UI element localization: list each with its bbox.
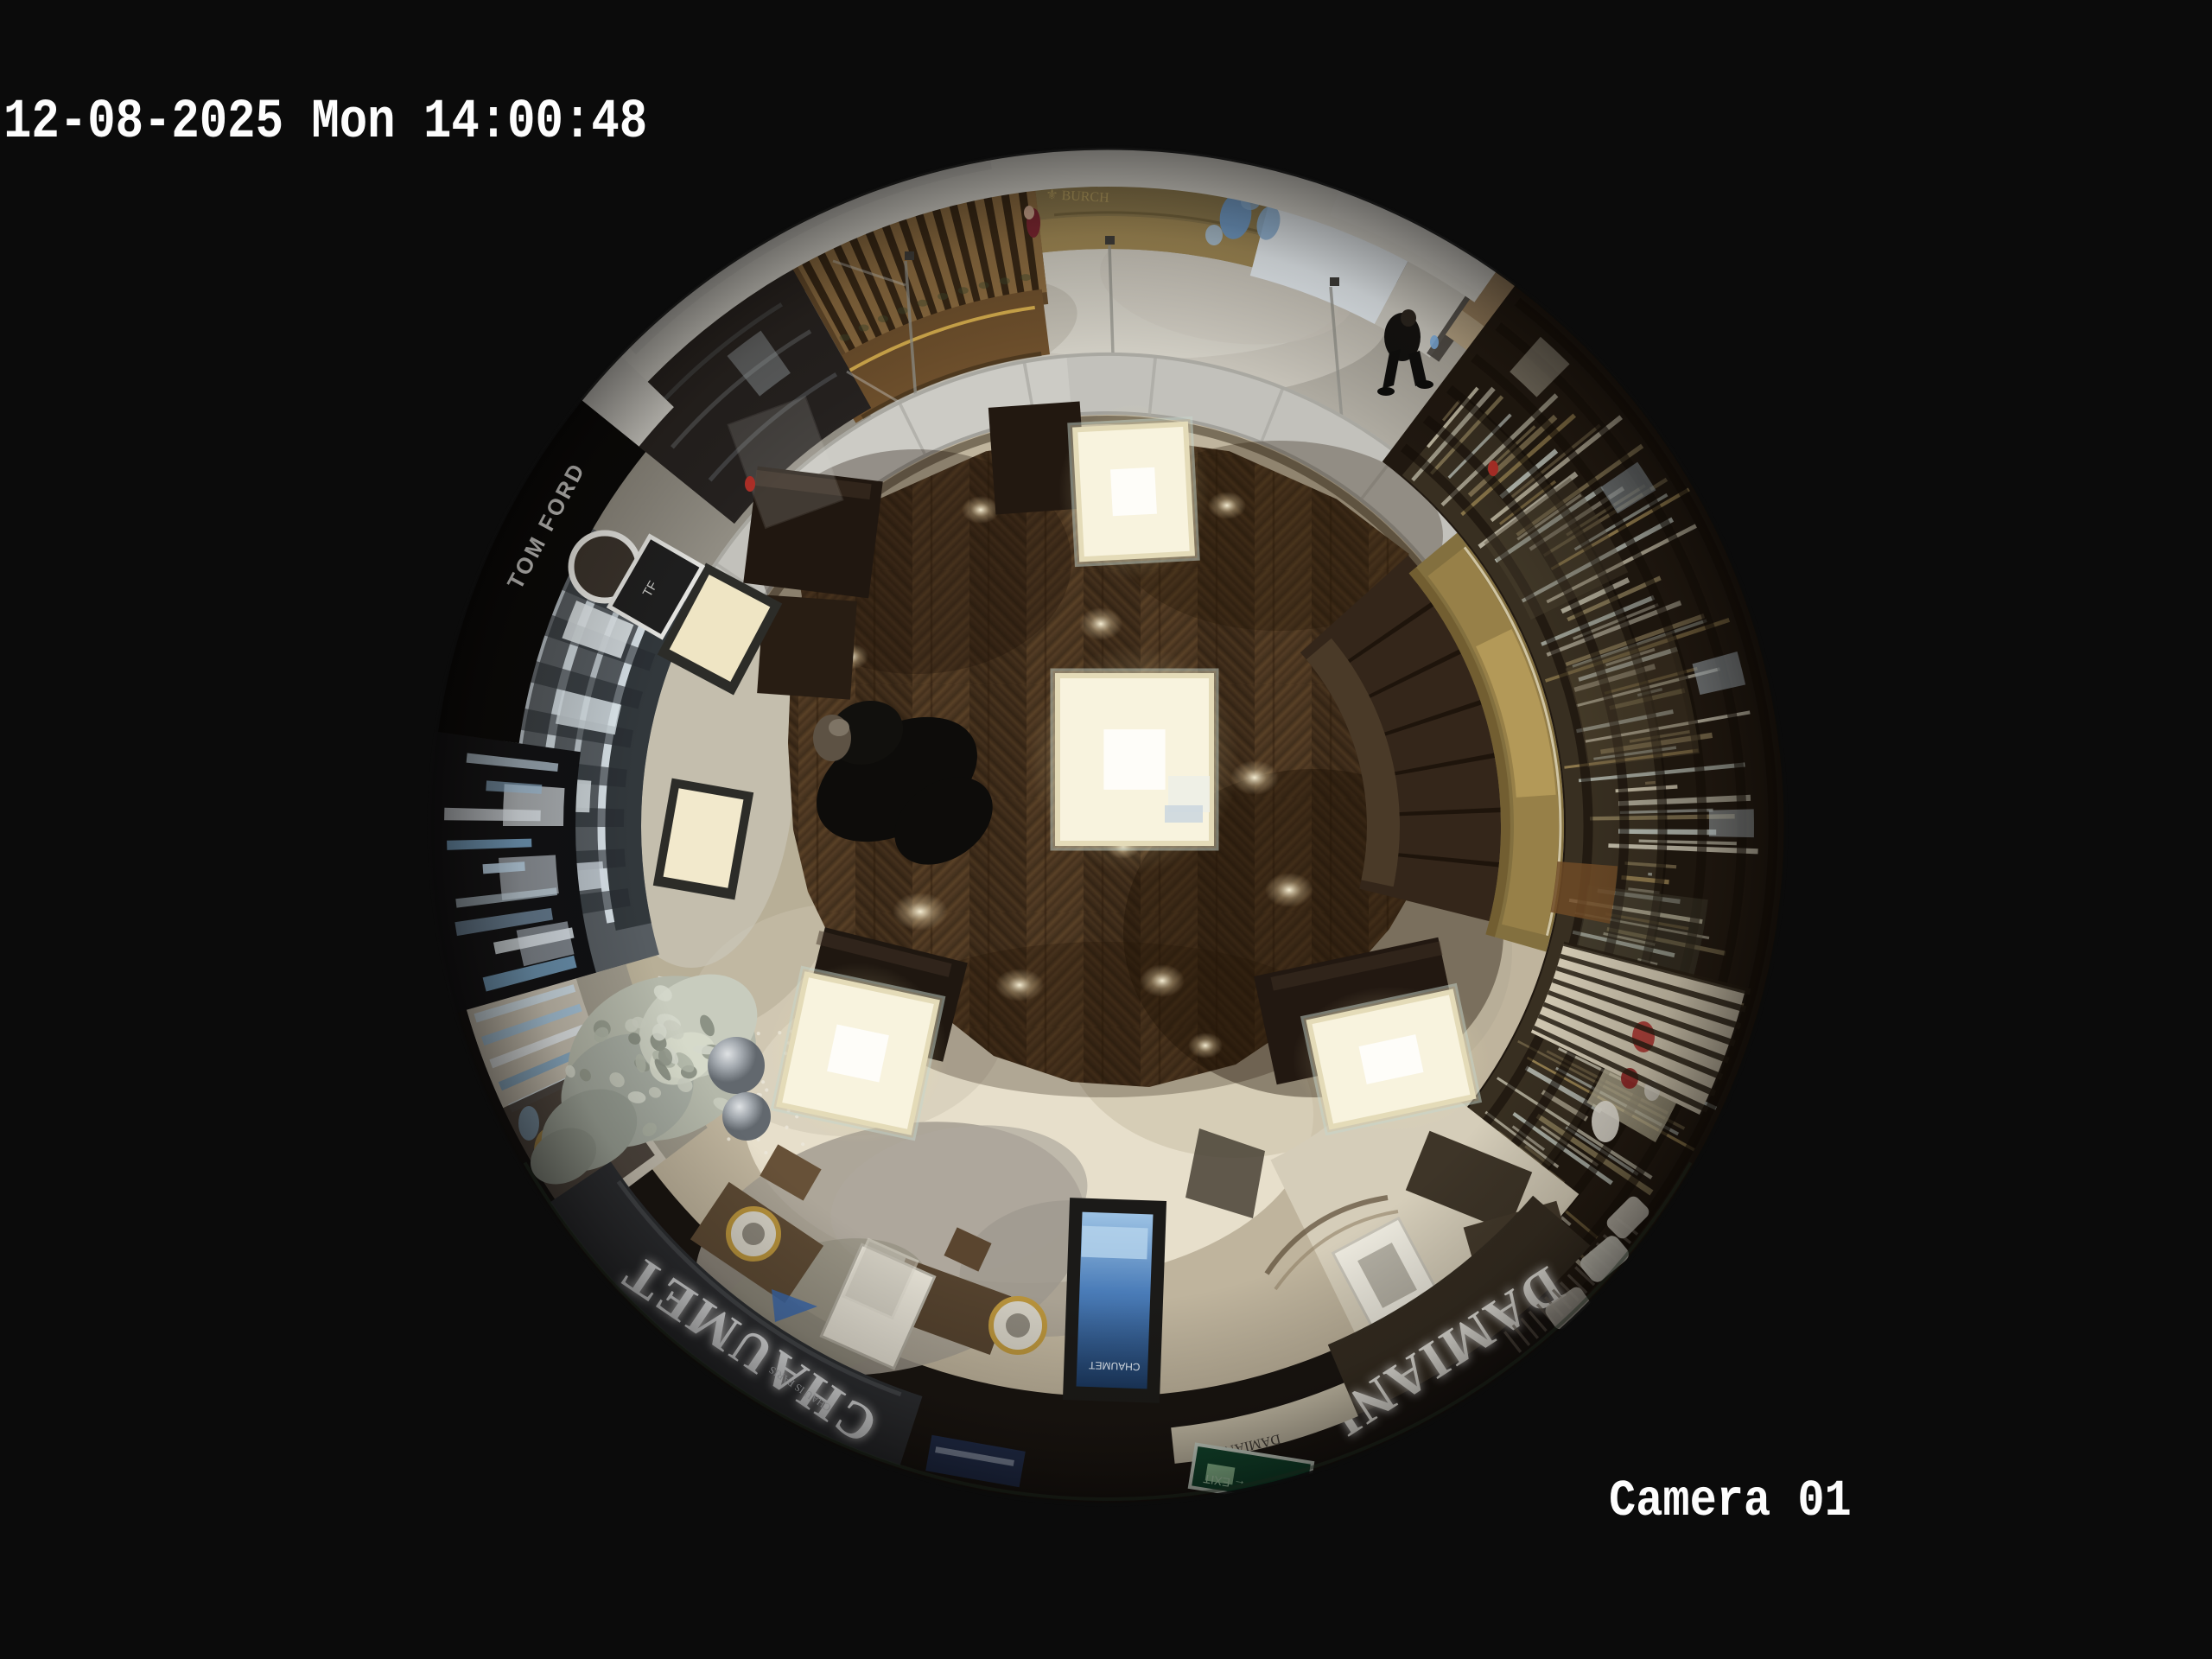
svg-text:Camera 01: Camera 01 [1609,1471,1852,1530]
svg-text:12-08-2025 Mon 14:00:48: 12-08-2025 Mon 14:00:48 [3,91,647,153]
